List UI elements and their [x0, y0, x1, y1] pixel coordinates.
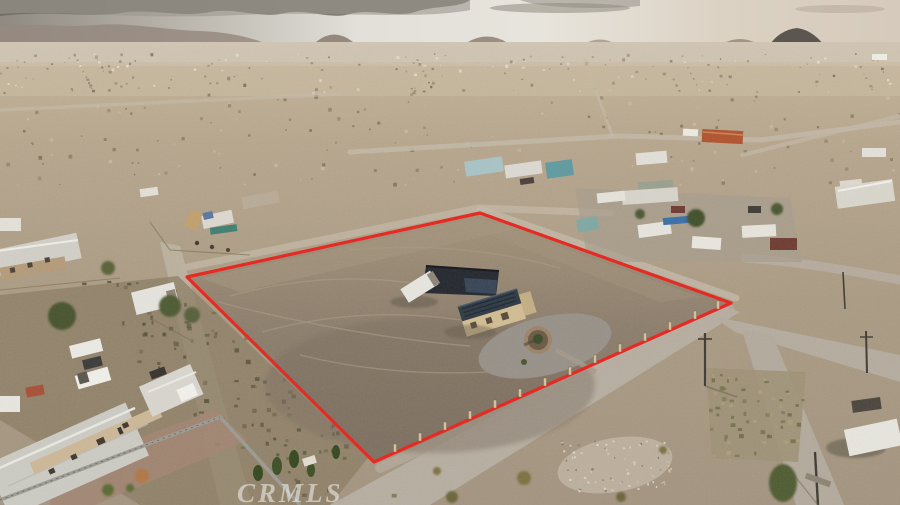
- crmls-watermark: CRMLS: [237, 478, 344, 505]
- aerial-photo-canvas: CRMLS: [0, 0, 900, 505]
- cloud-wisp-right: [795, 5, 885, 13]
- cloud-wisp: [490, 3, 630, 13]
- terrain-grain-texture: [0, 46, 900, 505]
- aerial-photo: CRMLS: [0, 0, 900, 505]
